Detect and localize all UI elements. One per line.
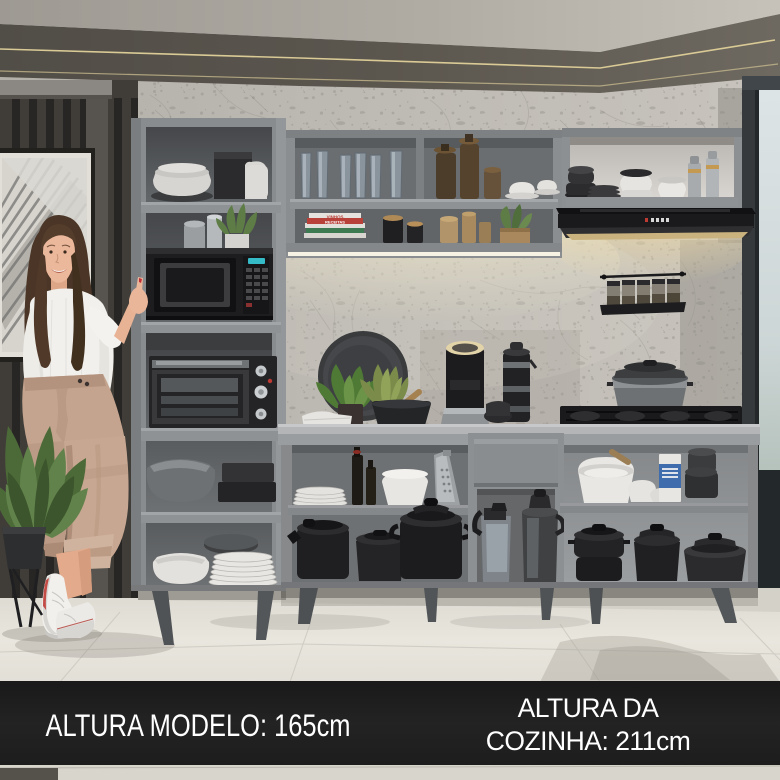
svg-text:ALTURA DA: ALTURA DA <box>518 693 660 723</box>
svg-text:RECEITAS: RECEITAS <box>325 220 345 225</box>
svg-text:COZINHA: 211cm: COZINHA: 211cm <box>486 726 691 756</box>
svg-text:ALTURA MODELO: 165cm: ALTURA MODELO: 165cm <box>46 707 351 743</box>
